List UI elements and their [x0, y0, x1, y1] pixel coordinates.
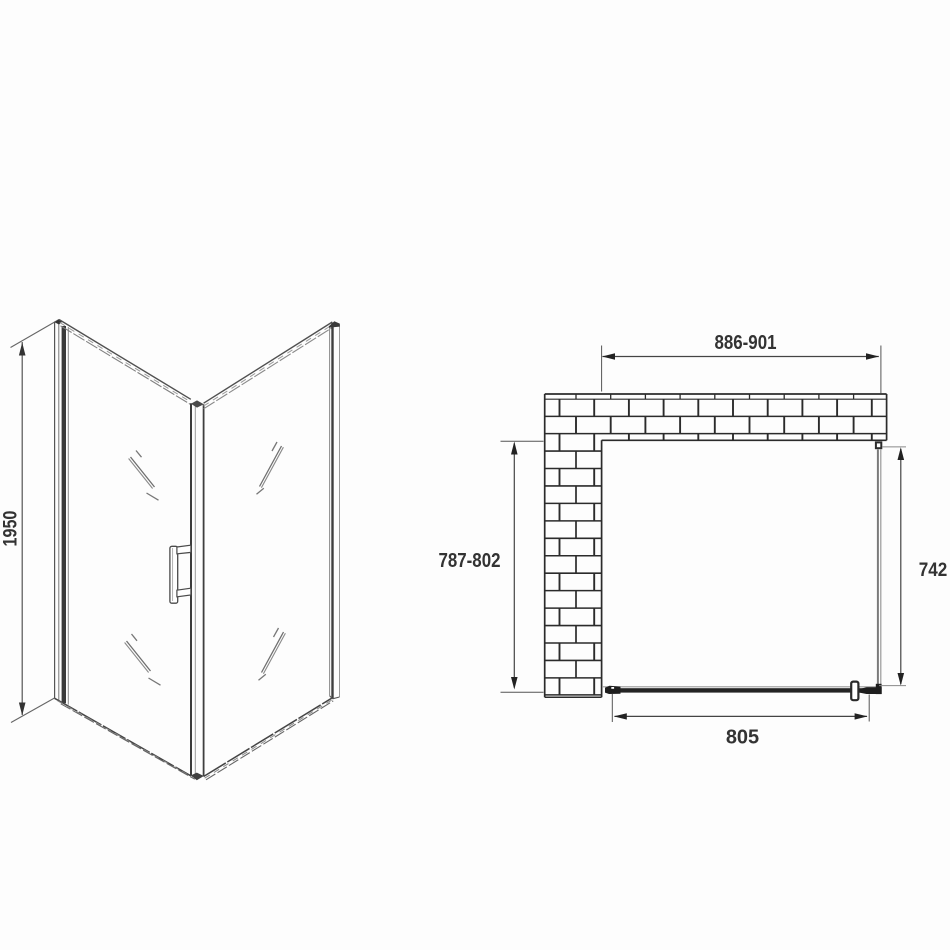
svg-text:1950: 1950 [0, 510, 21, 546]
svg-text:742: 742 [919, 559, 948, 580]
svg-text:787-802: 787-802 [439, 549, 501, 572]
svg-text:886-901: 886-901 [715, 331, 777, 354]
svg-text:805: 805 [726, 727, 759, 749]
